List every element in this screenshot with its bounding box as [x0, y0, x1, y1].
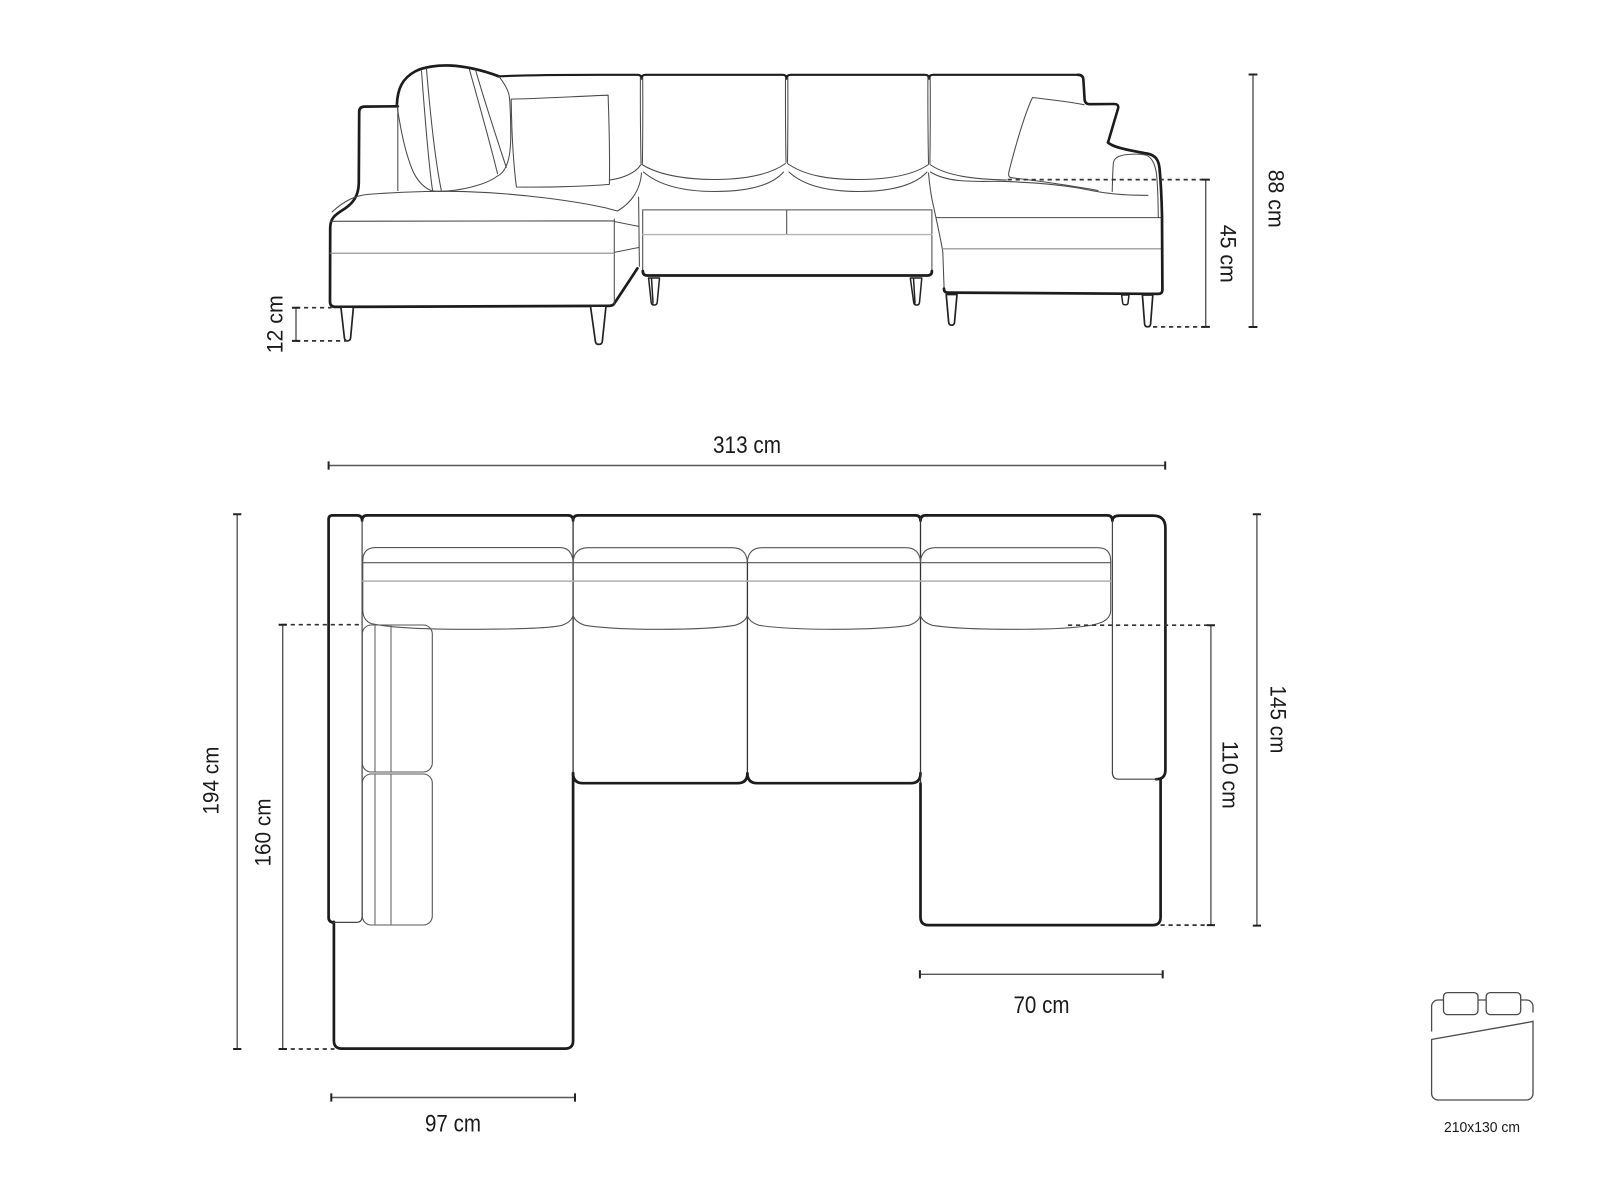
svg-text:194 cm: 194 cm — [199, 747, 224, 815]
svg-text:160 cm: 160 cm — [251, 799, 276, 867]
svg-text:45 cm: 45 cm — [1215, 225, 1240, 283]
svg-text:97 cm: 97 cm — [425, 1111, 481, 1138]
svg-text:12 cm: 12 cm — [263, 295, 288, 353]
svg-text:70 cm: 70 cm — [1014, 992, 1070, 1019]
svg-text:88 cm: 88 cm — [1263, 170, 1288, 228]
svg-text:313 cm: 313 cm — [713, 432, 781, 459]
svg-text:145 cm: 145 cm — [1265, 685, 1290, 753]
svg-text:210x130 cm: 210x130 cm — [1444, 1119, 1520, 1136]
svg-text:110 cm: 110 cm — [1217, 741, 1242, 809]
